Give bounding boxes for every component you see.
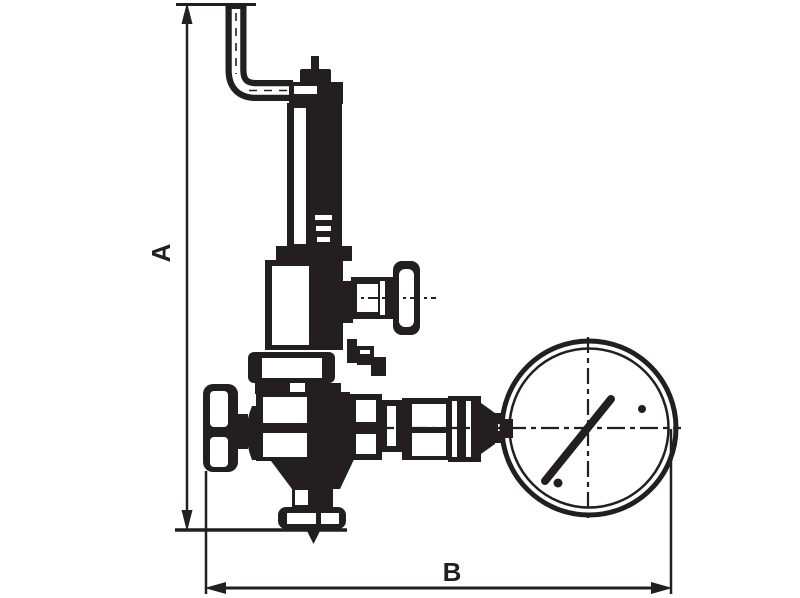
- spring-coil: [317, 237, 330, 242]
- bonnet-cap: [300, 69, 331, 83]
- bonnet-base-flange: [276, 246, 352, 261]
- inlet-stem: [237, 414, 248, 449]
- spring-coil: [315, 215, 332, 220]
- spring-coil: [316, 226, 331, 231]
- dimension-label-a: A: [146, 243, 176, 262]
- scale-pin: [638, 405, 646, 413]
- valve-dimension-drawing: A B: [0, 0, 800, 598]
- inlet-handwheel: [203, 384, 238, 472]
- drawing-canvas: A B: [0, 0, 800, 598]
- vent-stem: [311, 56, 319, 71]
- needle-stop-pin: [554, 479, 563, 488]
- dimension-label-b: B: [443, 557, 462, 587]
